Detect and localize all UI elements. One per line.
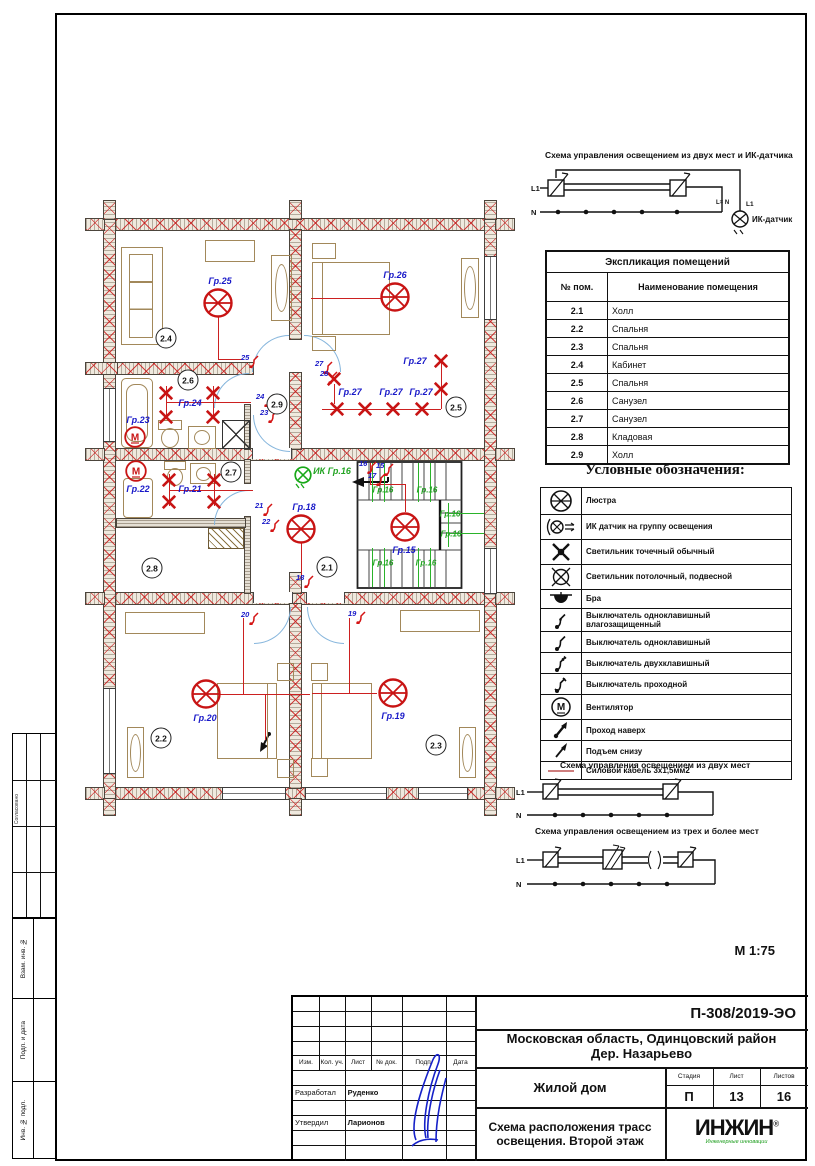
switch-number: 27 [315, 359, 323, 368]
col-room-name: Наименование помещения [608, 273, 790, 302]
stair-group-label: Гр.16 [373, 559, 394, 568]
switch-number: 28 [320, 369, 328, 378]
switch-icon [304, 574, 315, 588]
room-number: 2.9 [267, 394, 288, 415]
legend-title: Условные обозначения: [540, 462, 790, 479]
group-label: Гр.22 [126, 484, 149, 494]
point-light-icon [206, 410, 221, 425]
lustra-icon [541, 488, 582, 514]
switch-number: 20 [241, 610, 249, 619]
room-number: 2.4 [156, 328, 177, 349]
point-light-icon [434, 354, 449, 369]
group-label: Гр.27 [409, 387, 432, 397]
group-label: Гр.23 [126, 415, 149, 425]
stair-group-label: Гр.16 [416, 559, 437, 568]
switch-number: 16 [359, 459, 367, 468]
cable-route-line [218, 316, 219, 359]
stair-light-line [418, 463, 419, 502]
sw1-icon [541, 632, 582, 652]
group-label: Гр.21 [178, 484, 201, 494]
scale-label: М 1:75 [690, 943, 775, 958]
point-light-icon [358, 402, 373, 417]
table-row: 2.5Спальня [546, 374, 789, 392]
switch-icon [249, 354, 260, 368]
stair-group-label: Гр.16 [373, 486, 394, 495]
cable-route-line [311, 298, 381, 299]
table-row: 2.1Холл [546, 302, 789, 320]
switch-number: 25 [241, 353, 249, 362]
group-label: Гр.25 [208, 276, 231, 286]
fan-icon: М [125, 460, 148, 483]
scheme-two-title: Схема управления освещением из двух мест [560, 760, 750, 770]
ceiling-icon [541, 565, 582, 589]
legend-row: Выключатель одноклавишный влагозащищенны… [541, 609, 791, 632]
group-label: Гр.27 [403, 356, 426, 366]
point-light-icon [386, 402, 401, 417]
legend-label: Подъем снизу [582, 745, 750, 758]
point-icon [541, 540, 582, 564]
stair-light-line [418, 548, 419, 587]
sheets-label: Листов [760, 1067, 808, 1085]
table-row: 2.8Кладовая [546, 428, 789, 446]
cable-route-line [243, 618, 244, 694]
cable-route-line [405, 484, 406, 512]
up-icon [541, 720, 582, 740]
signature [398, 1042, 453, 1154]
legend-row: ИК датчик на группу освещения [541, 515, 791, 540]
point-light-icon [159, 410, 174, 425]
chandelier-icon [189, 677, 223, 711]
point-light-icon [415, 402, 430, 417]
registered-icon: ® [773, 1120, 778, 1129]
group-label: Гр.18 [292, 502, 315, 512]
point-light-icon [207, 495, 222, 510]
rise-icon [541, 741, 582, 761]
svg-text:L1: L1 [531, 184, 540, 193]
point-light-icon [330, 402, 345, 417]
switch-number: 23 [260, 408, 268, 417]
scheme-two-diagram: L1 N [515, 772, 805, 824]
svg-text:L1: L1 [516, 856, 525, 865]
sconce-icon [541, 590, 582, 608]
sheet-title: Схема расположения трассосвещения. Второ… [475, 1107, 665, 1161]
scheme-three-diagram: L1 N [515, 838, 805, 894]
chandelier-icon [388, 510, 422, 544]
cable-route-line [218, 359, 241, 360]
legend-label: Выключатель одноклавишный [582, 636, 750, 649]
stair-group-label: Гр.16 [440, 510, 461, 519]
legend-row: Светильник потолочный, подвесной [541, 565, 791, 590]
company-logo: ИНЖИН® Инженерные инновации [665, 1107, 808, 1161]
cable-route-line [312, 693, 377, 694]
switch-icon [356, 610, 367, 624]
fan-icon: М [124, 426, 147, 449]
scheme-top-diagram: L1 N L= N L1 ИК-датчик [530, 162, 802, 248]
switch-number: 15 [376, 461, 384, 470]
cable-route-line [265, 694, 266, 740]
fan-icon: М [541, 695, 582, 719]
sheet-label: Лист [713, 1067, 760, 1085]
svg-text:М: М [557, 702, 565, 713]
room-number: 2.7 [221, 462, 242, 483]
legend-row: Светильник точечный обычный [541, 540, 791, 565]
switch-icon [263, 502, 274, 516]
ir-sensor-icon [291, 463, 315, 489]
svg-text:N: N [531, 208, 536, 217]
table-title: Экспликация помещений [546, 251, 789, 273]
group-label: Гр.20 [193, 713, 216, 723]
project-location: Московская область, Одинцовский районДер… [475, 1031, 808, 1061]
svg-text:ИК-датчик: ИК-датчик [752, 215, 793, 224]
legend-label: Светильник потолочный, подвесной [582, 570, 750, 583]
legend-label: Бра [582, 592, 750, 605]
group-label: Гр.27 [379, 387, 402, 397]
stair-light-line [430, 463, 431, 502]
switch-number: 22 [262, 517, 270, 526]
room-number: 2.6 [178, 370, 199, 391]
stair-group-label: Гр.16 [441, 530, 462, 539]
drawing-sheet: Согласовано Взам. инв. № Подп. и дата Ин… [0, 0, 815, 1166]
chandelier-icon [284, 512, 318, 546]
chandelier-icon [376, 676, 410, 710]
point-light-icon [162, 473, 177, 488]
legend-label: ИК датчик на группу освещения [582, 520, 750, 533]
point-light-icon [162, 495, 177, 510]
room-number: 2.2 [151, 728, 172, 749]
room-explication-table: Экспликация помещений № пом. Наименовани… [545, 250, 790, 465]
svg-text:N: N [516, 811, 521, 820]
group-label: Гр.26 [383, 270, 406, 280]
stage-label: Стадия [665, 1067, 713, 1085]
chandelier-icon [201, 286, 235, 320]
point-light-icon [207, 473, 222, 488]
sheet-value: 13 [713, 1085, 760, 1107]
ir-sensor-label: ИК Гр.16 [313, 466, 351, 476]
group-label: Гр.24 [178, 398, 201, 408]
legend-row: Выключатель одноклавишный [541, 632, 791, 653]
point-light-icon [434, 382, 449, 397]
col-room-number: № пом. [546, 273, 608, 302]
title-block: Изм.Кол. уч.Лист№ док.Подп.Дата Разработ… [291, 995, 808, 1161]
table-row: 2.2Спальня [546, 320, 789, 338]
svg-text:L1: L1 [516, 788, 525, 797]
legend-label: Светильник точечный обычный [582, 545, 750, 558]
svg-text:М: М [131, 433, 139, 444]
stamp-role-row: РазработалРуденко [293, 1085, 403, 1100]
sw2-icon [541, 653, 582, 673]
legend-label: Выключатель проходной [582, 678, 750, 691]
document-number: П-308/2019-ЭО [475, 997, 796, 1029]
stair-light-line [372, 548, 373, 587]
point-light-icon [159, 386, 174, 401]
cable-route-line [301, 543, 302, 575]
ik-icon [541, 515, 582, 539]
legend-label: Выключатель двухклавишный [582, 657, 750, 670]
room-number: 2.5 [446, 397, 467, 418]
switch-icon [328, 370, 339, 384]
legend-row: Проход наверх [541, 720, 791, 741]
sheets-value: 16 [760, 1085, 808, 1107]
cable-route-line [349, 618, 350, 693]
switch-number: 18 [296, 573, 304, 582]
svg-text:N: N [516, 880, 521, 889]
logo-subtitle: Инженерные инновации [665, 1139, 808, 1145]
object-name: Жилой дом [475, 1067, 665, 1107]
legend: Люстра ИК датчик на группу освещения Све… [540, 487, 792, 780]
table-row: 2.7Санузел [546, 410, 789, 428]
switch-icon [270, 518, 281, 532]
legend-row: Выключатель проходной [541, 674, 791, 695]
room-number: 2.3 [426, 735, 447, 756]
table-row: 2.6Санузел [546, 392, 789, 410]
legend-row: Бра [541, 590, 791, 609]
scheme-top-title: Схема управления освещением из двух мест… [545, 150, 793, 160]
stamp-role-row: УтвердилЛарионов [293, 1115, 403, 1130]
point-light-icon [206, 386, 221, 401]
sw1w-icon [541, 609, 582, 631]
stage-value: П [665, 1085, 713, 1107]
legend-row: Выключатель двухклавишный [541, 653, 791, 674]
stair-group-label: Гр.16 [417, 486, 438, 495]
legend-label: Люстра [582, 494, 750, 507]
legend-label: Выключатель одноклавишный влагозащищенны… [582, 609, 750, 631]
svg-text:М: М [132, 467, 140, 478]
table-row: 2.3Спальня [546, 338, 789, 356]
legend-row: М Вентилятор [541, 695, 791, 720]
group-label: Гр.27 [338, 387, 361, 397]
svg-text:L1: L1 [746, 201, 754, 208]
legend-label: Вентилятор [582, 701, 750, 714]
legend-row: Люстра [541, 488, 791, 515]
legend-label: Проход наверх [582, 724, 750, 737]
switch-number: 24 [256, 392, 264, 401]
room-number: 2.8 [142, 558, 163, 579]
chandelier-icon [378, 280, 412, 314]
group-label: Гр.15 [392, 545, 415, 555]
table-row: 2.4Кабинет [546, 356, 789, 374]
switch-number: 17 [368, 471, 376, 480]
room-number: 2.1 [317, 557, 338, 578]
switch-number: 21 [255, 501, 263, 510]
svg-text:L= N: L= N [716, 200, 729, 206]
switch-icon [376, 472, 387, 486]
swp-icon [541, 674, 582, 694]
stair-light-line [430, 548, 431, 587]
switch-number: 19 [348, 609, 356, 618]
switch-icon [249, 611, 260, 625]
stair-light-line [384, 548, 385, 587]
group-label: Гр.19 [381, 711, 404, 721]
scheme-three-title: Схема управления освещением из трех и бо… [535, 826, 759, 836]
